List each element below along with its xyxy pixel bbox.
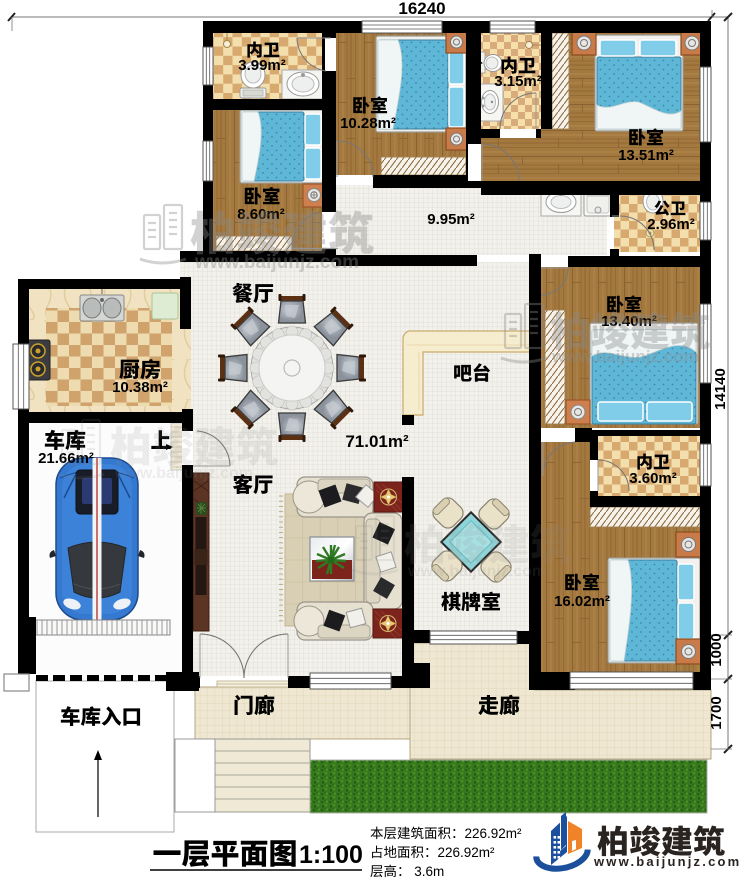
svg-text:www.baijunjz.com: www.baijunjz.com (194, 252, 359, 273)
svg-text:： 3.6m: ： 3.6m (397, 864, 444, 879)
svg-text:14140: 14140 (712, 368, 729, 410)
svg-text:1700: 1700 (708, 696, 725, 729)
svg-text:2.96m²: 2.96m² (647, 216, 695, 233)
svg-text:3.60m²: 3.60m² (629, 470, 677, 487)
svg-text:71.01m²: 71.01m² (345, 432, 409, 451)
svg-text:www.baijunjz.com: www.baijunjz.com (114, 465, 253, 482)
svg-text:13.51m²: 13.51m² (618, 147, 674, 164)
svg-text:10.38m²: 10.38m² (112, 379, 168, 396)
svg-text:16.02m²: 16.02m² (554, 593, 610, 610)
svg-text:1:100: 1:100 (299, 841, 363, 869)
svg-text:9.95m²: 9.95m² (427, 211, 475, 228)
svg-text:www.baijunjz.com: www.baijunjz.com (407, 563, 546, 580)
svg-text:3.15m²: 3.15m² (494, 73, 542, 90)
svg-text:16240: 16240 (398, 0, 445, 18)
svg-text:www.baijunjz.com: www.baijunjz.com (551, 347, 699, 366)
svg-text:：226.92m²: ：226.92m² (451, 826, 522, 841)
svg-text:：226.92m²: ：226.92m² (424, 845, 495, 860)
svg-text:10.28m²: 10.28m² (340, 115, 396, 132)
svg-text:www.baijunjz.com: www.baijunjz.com (593, 854, 741, 869)
svg-text:3.99m²: 3.99m² (238, 57, 286, 74)
svg-text:1000: 1000 (708, 633, 725, 666)
